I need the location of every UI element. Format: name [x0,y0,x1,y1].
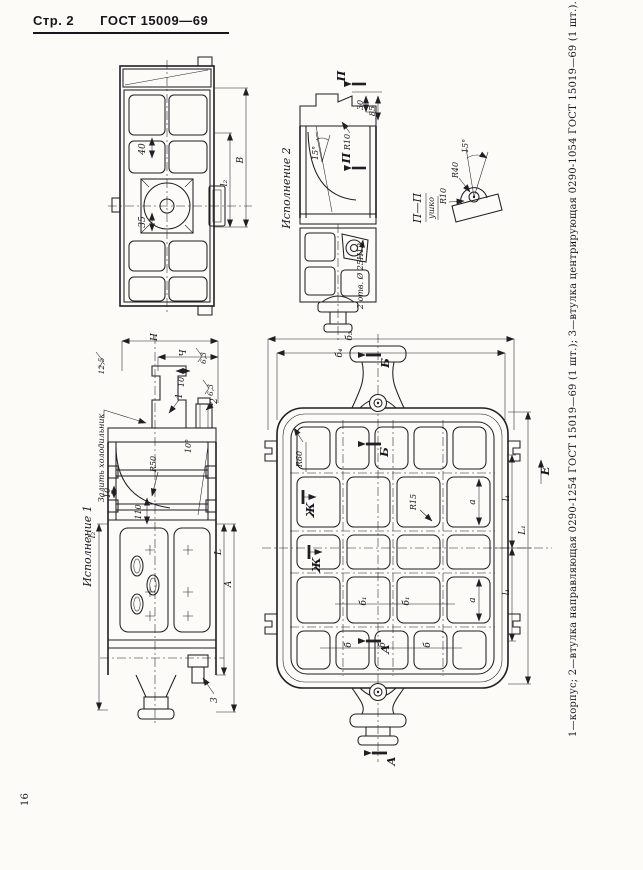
dim-label-L1: L₁ [518,525,528,536]
dim-label-35: 35 [138,216,148,228]
dim-label-30: 30 [356,100,365,110]
roughness-6-3: 6,3 [199,352,208,364]
section-letter-B: Б [378,358,392,369]
dim-label-a: а [468,499,478,504]
dim-label-B: В [236,156,246,164]
dim-label-l2: l₂ [220,179,230,186]
view-letter-Zh: Ж [303,502,317,519]
angle-label-10: 10° [184,439,193,453]
left-lugs [265,441,277,634]
dim-label-l2: l₂ [88,531,98,538]
roughness-6-3: 6,3 [206,384,215,396]
center-bushing [188,655,208,683]
holes-note: 2 отв. Ø 25Н12 [356,243,365,310]
dim-label-85: 85 [368,106,377,116]
radius-label-r60: R60 [295,451,304,468]
ref-label-3: 3 [210,697,220,703]
dim-label-b: б [343,642,354,648]
dim-label-10: 10 [103,488,112,498]
dim-label-l1: l₁ [502,495,512,502]
radius-label-r10: R10 [439,188,448,205]
bottom-trunnion [350,684,406,746]
dim-label-10: 10 [177,377,186,387]
view-letter-E: Е [538,466,552,476]
dim-label-b: б [377,642,388,648]
variant2-view: Исполнение 2 П П 30 85 R10 [280,69,382,340]
lug-detail: П—П ушко 15° R40 R10 [411,139,502,224]
dim-label-b4: б₄ [334,348,345,357]
right-lugs [508,441,520,634]
section-mark-A-bottom: А [364,750,398,767]
lug-base [452,194,502,222]
radius-label-r10: R10 [343,134,352,151]
view-mark-Zh-2: Ж [309,545,323,574]
dim-label-b3: б₃ [344,331,355,340]
view-mark-Zh-1: Ж [303,490,317,519]
dim-label-b1: б₁ [401,596,412,605]
roughness-12-5: 12,5 [97,357,106,374]
bottom-trunnion-pin [136,675,176,719]
end-view: 40 35 l₂ В [108,57,252,315]
variant1-view: Исполнение 1 Н Ч 12,5 6,3 6,3 10 1 [81,333,236,725]
section-letter-B: Б [377,447,391,458]
view-letter-Zh: Ж [309,557,323,574]
dim-label-40: 40 [138,143,148,156]
radius-label-r15: R15 [409,494,418,511]
left-tab [112,198,120,212]
radius-label-r40: R40 [451,162,460,179]
angle-label-15: 15° [461,139,470,153]
dim-label-b1: б₁ [358,596,369,605]
ref-label-1: 1 [175,393,185,399]
plan-view: б₃ б₄ [262,331,552,767]
section-mark-P-top: П [334,69,366,87]
angle-label-15: 15° [311,146,320,160]
drawing-sheet: 40 35 l₂ В Исполнение 2 П [0,0,643,870]
section-mark-P-bottom: П [339,151,366,171]
dim-label-b: б [422,642,433,648]
standard-page: Стр. 2 ГОСТ 15009—69 [0,0,643,870]
dim-label-l1: l₁ [502,589,512,596]
dim-label-A: А [224,580,234,588]
variant1-title: Исполнение 1 [81,505,94,588]
section-letter-A: А [384,756,398,766]
parts-caption: 1—корпус; 2—втулка направляющая 0290-125… [568,1,579,737]
detail-subtitle: ушко [427,197,436,220]
dim-label-Ch: Ч [179,348,189,356]
dim-label-a: а [468,597,478,602]
section-letter-P: П [334,69,348,82]
dim-label-L: L [214,549,224,556]
sheet-page-number: 16 [20,793,31,806]
section-letter-P: П [339,151,353,164]
variant2-title: Исполнение 2 [280,147,293,230]
ref-label-2: 2 [210,398,220,405]
detail-title: П—П [411,193,424,225]
flange-band [108,428,216,442]
dim-label-110: 110 [134,504,143,519]
